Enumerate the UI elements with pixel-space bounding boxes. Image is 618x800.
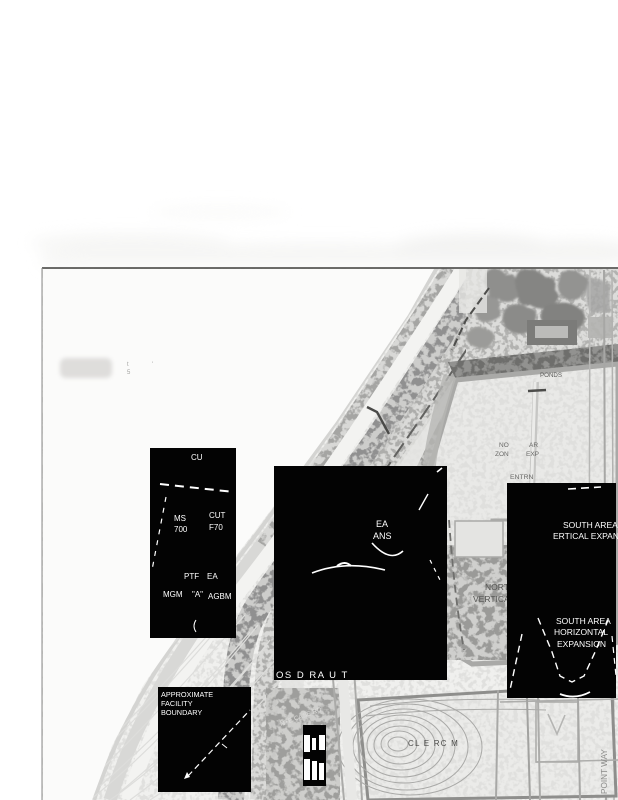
svg-text:FACILITY: FACILITY bbox=[161, 699, 193, 708]
svg-text:ENTRN: ENTRN bbox=[510, 474, 534, 481]
svg-text:EXP: EXP bbox=[526, 451, 539, 458]
svg-text:EA: EA bbox=[376, 519, 388, 529]
svg-text:CUT: CUT bbox=[209, 511, 226, 520]
svg-text:SOUTH AREA: SOUTH AREA bbox=[556, 616, 611, 626]
svg-text:"A": "A" bbox=[192, 590, 203, 599]
svg-text:ERTICAL EXPANSIO: ERTICAL EXPANSIO bbox=[553, 531, 618, 541]
svg-text:ANS: ANS bbox=[373, 531, 392, 541]
svg-text:PONDS: PONDS bbox=[540, 372, 562, 379]
svg-text:MGM: MGM bbox=[163, 590, 183, 599]
svg-text:OS D RA U T: OS D RA U T bbox=[276, 670, 349, 681]
svg-text:PTF: PTF bbox=[184, 572, 199, 581]
svg-text:F70: F70 bbox=[209, 523, 223, 532]
svg-text:MS: MS bbox=[174, 514, 186, 523]
svg-text:BOUNDARY: BOUNDARY bbox=[161, 708, 202, 717]
svg-text:CL E RC M: CL E RC M bbox=[408, 739, 459, 748]
svg-text:': ' bbox=[152, 362, 153, 368]
svg-text:700: 700 bbox=[174, 525, 188, 534]
svg-text:HORIZONTAL: HORIZONTAL bbox=[554, 627, 608, 637]
svg-text:CU: CU bbox=[191, 453, 203, 462]
svg-text:ZON: ZON bbox=[495, 451, 509, 458]
svg-text:AGBM: AGBM bbox=[208, 592, 232, 601]
svg-text:SOUTH AREA: SOUTH AREA bbox=[563, 520, 618, 530]
svg-text:POINT WAY: POINT WAY bbox=[600, 749, 609, 794]
svg-text:NO: NO bbox=[499, 442, 509, 449]
svg-text:EA: EA bbox=[207, 572, 218, 581]
svg-text:APPROXIMATE: APPROXIMATE bbox=[161, 690, 213, 699]
svg-text:AR: AR bbox=[529, 442, 538, 449]
